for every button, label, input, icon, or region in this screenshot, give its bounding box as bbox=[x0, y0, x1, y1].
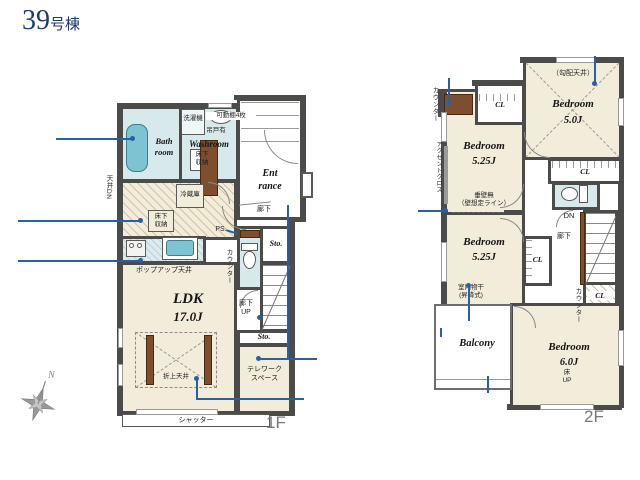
compass-north-label: N bbox=[47, 370, 56, 381]
label-bedroom-50-name: Bedroom bbox=[543, 98, 603, 112]
label-bedroom-50-size: 5.0J bbox=[543, 114, 603, 127]
label-dn: DN bbox=[559, 211, 579, 220]
annotation-dot-no-drop-wall bbox=[443, 208, 448, 213]
toilet-bowl-2f bbox=[561, 187, 578, 201]
wall-stub bbox=[504, 210, 525, 215]
label-bedroom-525a-size: 5.25J bbox=[453, 155, 515, 168]
compass-rose: N bbox=[12, 364, 70, 438]
label-hallway-2f: 廊下 bbox=[551, 233, 577, 242]
annotation-tick-balcony-bottom bbox=[487, 376, 489, 393]
window bbox=[441, 242, 447, 282]
label-bedroom-60-size: 6.0J bbox=[534, 356, 604, 369]
label-sloped-ceiling: （勾配天井） bbox=[528, 70, 618, 79]
annotation-tick-balcony-left bbox=[440, 328, 442, 337]
label-floor-up: 床 UP bbox=[560, 369, 574, 385]
annotation-line-indoor-drying bbox=[468, 287, 470, 321]
label-counter-top-2f: カウンター bbox=[427, 84, 438, 124]
annotation-dot-counter-2f bbox=[446, 101, 451, 106]
annotation-line-sloped bbox=[594, 56, 596, 83]
label-closet-left: CL bbox=[525, 255, 550, 264]
balcony-rail-line bbox=[436, 379, 510, 380]
window bbox=[441, 112, 447, 142]
toilet-tank-2f bbox=[579, 185, 588, 203]
label-balcony: Balcony bbox=[449, 337, 505, 350]
annotation-dot-sloped bbox=[592, 81, 597, 86]
label-closet-right: CL bbox=[560, 167, 610, 176]
label-bedroom-525a-name: Bedroom bbox=[453, 140, 515, 154]
floor2-plan: カウンター CL （勾配天井） Bedroom 5.0J CL アクセントクロス… bbox=[0, 0, 640, 480]
window bbox=[618, 98, 624, 126]
window bbox=[618, 330, 624, 366]
floorplan-image: 39号棟 bbox=[0, 0, 640, 480]
label-no-drop-wall: 垂壁無 （壁想定ライン） bbox=[443, 192, 525, 208]
label-accent-cloth: アクセントクロス bbox=[430, 136, 441, 198]
label-bedroom-525b-size: 5.25J bbox=[453, 251, 515, 264]
label-bedroom-525b-name: Bedroom bbox=[453, 236, 515, 250]
window bbox=[556, 57, 596, 63]
label-closet-bottom: CL bbox=[587, 291, 613, 300]
floor-label-2f: 2F bbox=[584, 407, 604, 427]
label-indoor-drying: 室内物干 (昇降式) bbox=[448, 284, 494, 300]
label-closet-top: CL bbox=[480, 100, 520, 109]
label-counter-bottom-2f: カウンター bbox=[570, 284, 581, 326]
stairs-2f-break-line bbox=[583, 210, 618, 287]
label-bedroom-60-name: Bedroom bbox=[534, 341, 604, 355]
